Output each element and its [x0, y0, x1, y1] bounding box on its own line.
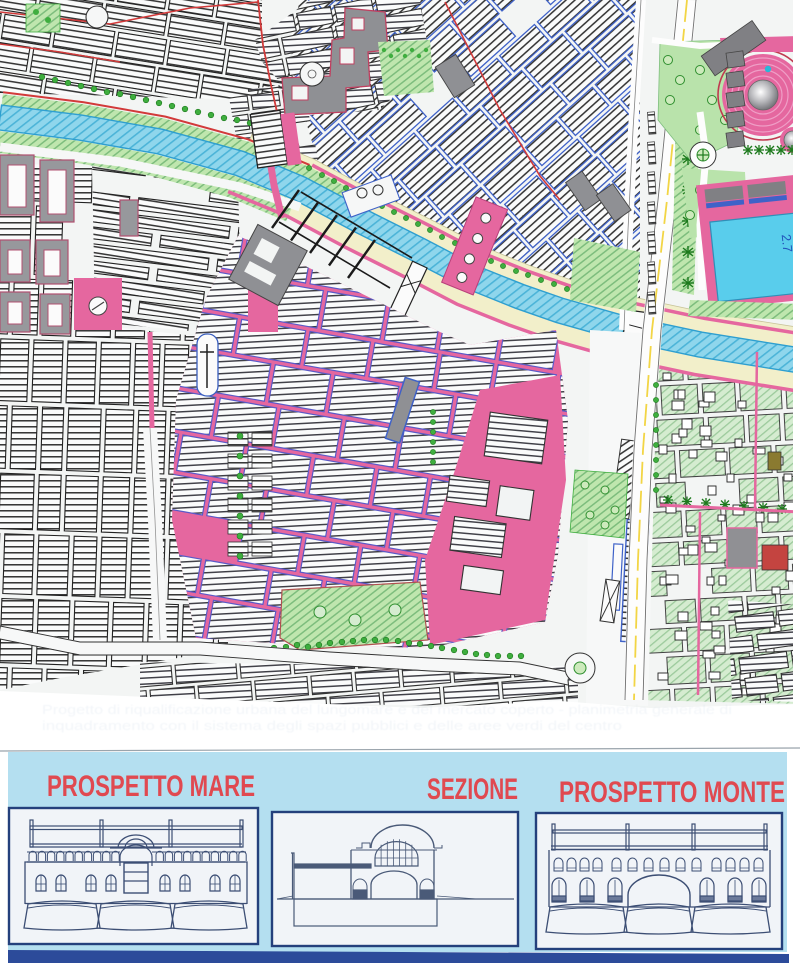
svg-text:SEZIONE: SEZIONE	[427, 773, 518, 806]
svg-text:inquadramento con il sistema d: inquadramento con il sistema degli spazi…	[42, 718, 622, 733]
svg-text:PROSPETTO MARE: PROSPETTO MARE	[47, 770, 255, 803]
svg-text:Progetto di riqualificazione u: Progetto di riqualificazione urbana del …	[42, 702, 732, 717]
svg-text:2.7: 2.7	[779, 233, 796, 253]
svg-text:PROSPETTO MONTE: PROSPETTO MONTE	[559, 776, 785, 809]
